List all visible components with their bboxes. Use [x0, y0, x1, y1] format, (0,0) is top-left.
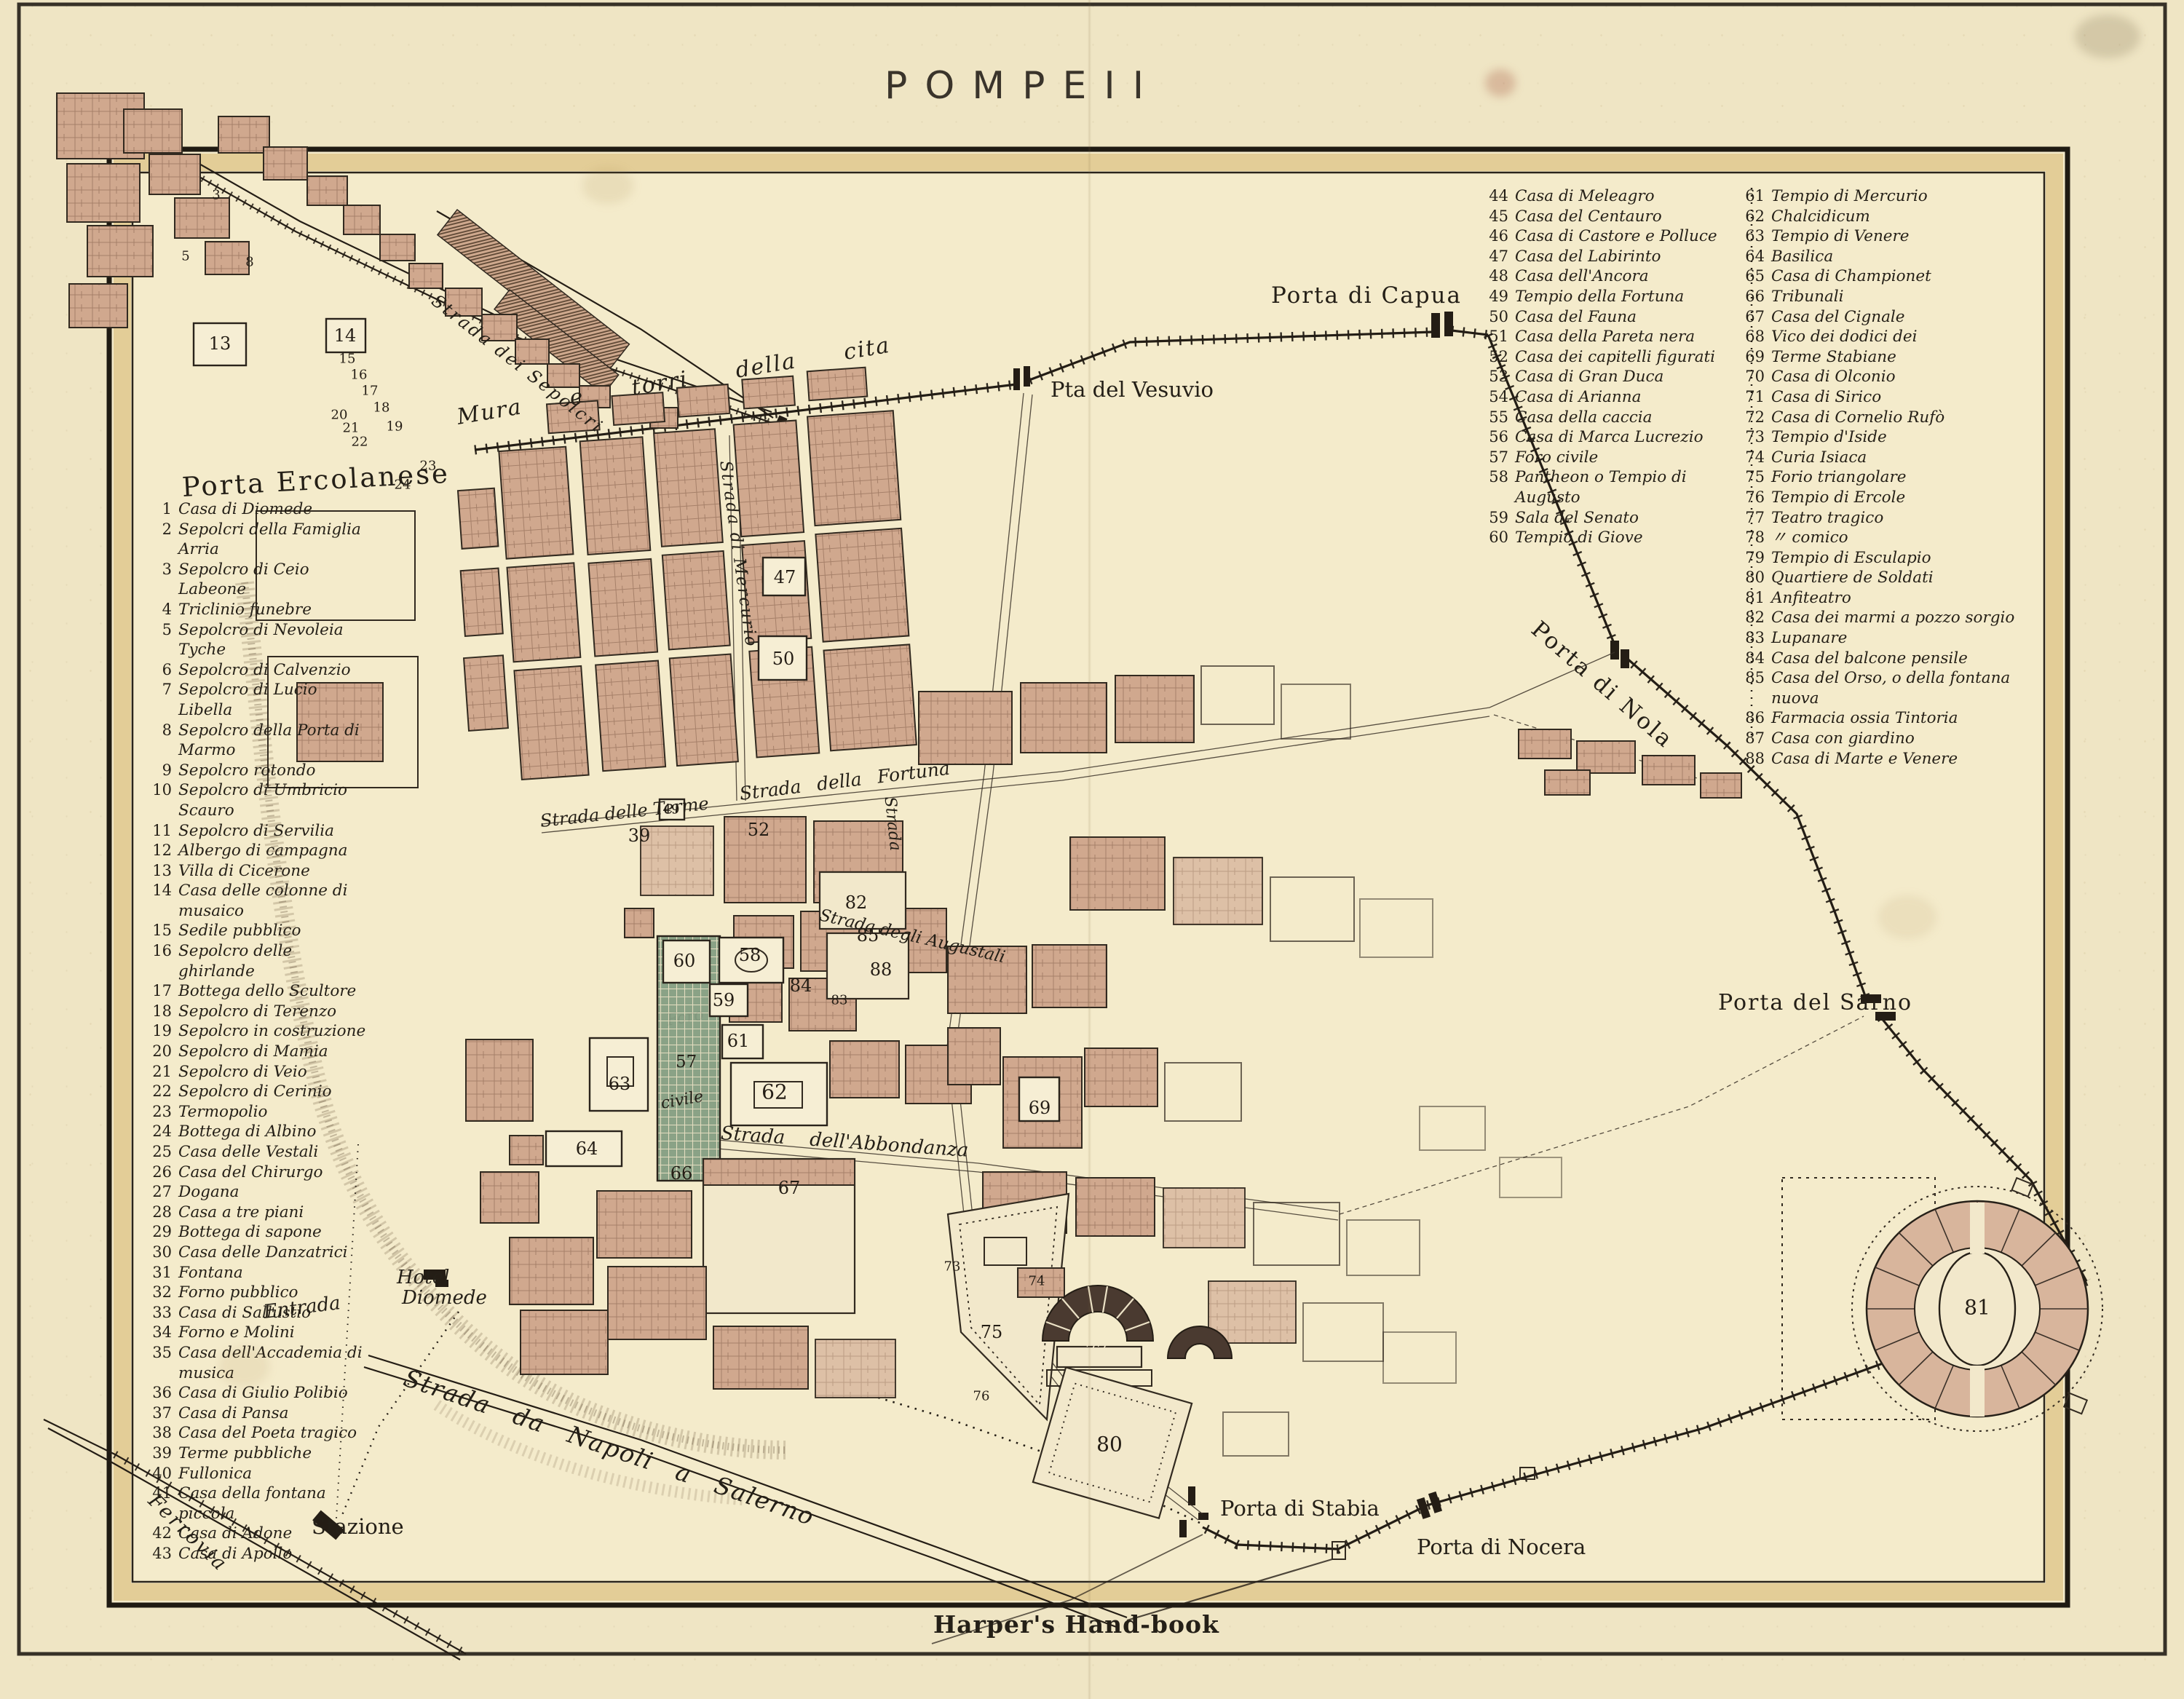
legend-item-text: Forno e Molini [178, 1323, 369, 1343]
legend-item-text: Casa di Giulio Polibio [178, 1383, 369, 1403]
legend-item: 10 Sepolcro di Umbricio Scauro [138, 780, 415, 820]
legend-item-number: 4 [138, 600, 178, 620]
map-number-83: 83 [831, 993, 848, 1008]
legend-item-number: 54 [1475, 387, 1515, 408]
label-strada-abbondanza: Strada dell'Abbondanza [720, 1122, 969, 1162]
label-foro-2: civile [660, 1088, 705, 1113]
legend-item-text: Sepolcro della Porta di Marmo [178, 721, 369, 761]
legend-item-number: 34 [138, 1323, 178, 1343]
legend-item: 87 Casa con giardino [1731, 729, 2052, 749]
legend-item-number: 41 [138, 1484, 178, 1524]
legend-item: 13 Villa di Cicerone [138, 861, 415, 882]
legend-item-text: Forno pubblico [178, 1283, 369, 1303]
legend-item: 8 Sepolcro della Porta di Marmo [138, 721, 415, 761]
legend-item: 76 Tempio di Ercole [1731, 488, 2052, 508]
legend-item: 82 Casa dei marmi a pozzo sorgio [1731, 608, 2052, 628]
legend-item-text: Tempio d'Iside [1771, 427, 2039, 448]
legend-item-number: 63 [1731, 226, 1771, 247]
credit: Harper's Hand-book [933, 1610, 1219, 1639]
legend-item-text: Sepolcro di Lucio Libella [178, 680, 369, 720]
legend-item-number: 16 [138, 941, 178, 981]
map-number-76: 76 [973, 1389, 990, 1404]
map-number-16: 16 [351, 368, 368, 383]
map-number-64: 64 [576, 1138, 598, 1159]
legend-item-text: Casa dell'Ancora [1515, 266, 1749, 287]
legend-item-text: Sepolcro di Terenzo [178, 1002, 369, 1022]
legend-item-text: Casa del Cignale [1771, 307, 2039, 328]
legend-item-text: Sepolcro di Veio [178, 1062, 369, 1082]
legend-item: 44 Casa di Meleagro [1475, 186, 1752, 207]
legend-item: 73 Tempio d'Iside [1731, 427, 2052, 448]
map-number-59: 59 [713, 990, 735, 1010]
map-number-74: 74 [1029, 1274, 1045, 1289]
legend-item-number: 79 [1731, 548, 1771, 569]
legend-item-text: Termopolio [178, 1102, 369, 1122]
legend-item-number: 12 [138, 841, 178, 861]
legend-item-text: Tempio di Giove [1515, 528, 1749, 548]
legend-item-number: 21 [138, 1062, 178, 1082]
legend-item-text: Casa del Orso, o della fontana nuova [1771, 668, 2039, 708]
legend-item: 11 Sepolcro di Servilia [138, 821, 415, 841]
paper-stain [218, 1347, 269, 1387]
legend-item: 71 Casa di Sirico [1731, 387, 2052, 408]
legend-item-text: Casa dei marmi a pozzo sorgio [1771, 608, 2039, 628]
map-number-88: 88 [870, 959, 893, 980]
label-strada-napoli-salerno: Strada da Napoli a Salerno [400, 1363, 819, 1531]
legend-item-number: 59 [1475, 508, 1515, 528]
legend-item-text: Casa di Meleagro [1515, 186, 1749, 207]
legend-item: 37 Casa di Pansa [138, 1403, 415, 1424]
legend-item: 81 Anfiteatro [1731, 588, 2052, 609]
legend-item: 25 Casa delle Vestali [138, 1142, 415, 1163]
map-number-52: 52 [748, 820, 770, 840]
legend-item: 43 Casa di Apollo [138, 1544, 415, 1564]
legend-item-text: Sepolcro di Cerinio [178, 1082, 369, 1102]
map-number-17: 17 [362, 384, 379, 399]
legend-item-text: Forio triangolare [1771, 467, 2039, 488]
label-strada-fortuna: Strada della Fortuna [738, 758, 951, 804]
legend-item: 54 Casa di Arianna [1475, 387, 1752, 408]
legend-item-number: 88 [1731, 749, 1771, 769]
legend-column-left: 1 Casa di Diomede 2 Sepolcri della Famig… [138, 499, 415, 1564]
legend-item: 29 Bottega di sapone [138, 1222, 415, 1243]
legend-item: 4 Triclinio funebre [138, 600, 415, 620]
label-strada-augustali: Strada degli Augustali [818, 906, 1007, 967]
legend-item-text: Casa delle Vestali [178, 1142, 369, 1163]
legend-item-text: Fontana [178, 1263, 369, 1283]
map-number-8: 8 [245, 255, 253, 270]
legend-item-number: 38 [138, 1423, 178, 1443]
map-title: POMPEII [885, 64, 1161, 108]
legend-item-number: 83 [1731, 628, 1771, 649]
legend-item-number: 27 [138, 1182, 178, 1203]
map-number-62: 62 [761, 1080, 788, 1104]
legend-item-text: Basilica [1771, 247, 2039, 267]
legend-item-number: 36 [138, 1383, 178, 1403]
legend-item: 56 Casa di Marca Lucrezio [1475, 427, 1752, 448]
map-number-21: 21 [343, 421, 360, 436]
legend-item-text: Casa di Pansa [178, 1403, 369, 1424]
legend-item-number: 85 [1731, 668, 1771, 708]
legend-item: 32 Forno pubblico [138, 1283, 415, 1303]
legend-item-text: Casa del Chirurgo [178, 1163, 369, 1183]
legend-item: 23 Termopolio [138, 1102, 415, 1122]
legend-item-number: 25 [138, 1142, 178, 1163]
legend-item-text: Casa di Sirico [1771, 387, 2039, 408]
legend-item: 46 Casa di Castore e Polluce [1475, 226, 1752, 247]
map-number-3: 3 [212, 188, 220, 203]
legend-item-text: Curia Isiaca [1771, 448, 2039, 468]
legend-item-text: Pantheon o Tempio di Augusto [1515, 467, 1749, 507]
legend-item-text: Casa di Arianna [1515, 387, 1749, 408]
label-porta-nola: Porta di Nola [1526, 616, 1679, 753]
legend-item: 77 Teatro tragico [1731, 508, 2052, 528]
legend-item-number: 15 [138, 921, 178, 941]
legend-item-text: Lupanare [1771, 628, 2039, 649]
legend-item-text: Casa di Apollo [178, 1544, 369, 1564]
map-number-50: 50 [772, 649, 795, 669]
legend-item-number: 26 [138, 1163, 178, 1183]
legend-item-number: 61 [1731, 186, 1771, 207]
legend-item-number: 56 [1475, 427, 1515, 448]
legend-item-text: Sepolcro di Mamia [178, 1042, 369, 1062]
legend-item-text: Tempio di Ercole [1771, 488, 2039, 508]
legend-item-number: 69 [1731, 347, 1771, 368]
legend-item: 61 Tempio di Mercurio [1731, 186, 2052, 207]
legend-item-text: Casa di Sallustio [178, 1303, 369, 1323]
legend-item-number: 75 [1731, 467, 1771, 488]
legend-item-number: 86 [1731, 708, 1771, 729]
legend-item-number: 14 [138, 881, 178, 921]
legend-item-text: Casa di Gran Duca [1515, 367, 1749, 387]
legend-item: 6 Sepolcro di Calvenzio [138, 660, 415, 681]
legend-item-text: Casa dei capitelli figurati [1515, 347, 1749, 368]
legend-item-number: 2 [138, 520, 178, 560]
legend-item: 28 Casa a tre piani [138, 1203, 415, 1223]
legend-item-text: Casa con giardino [1771, 729, 2039, 749]
legend-item: 80 Quartiere de Soldati [1731, 568, 2052, 588]
paper-stain [1485, 69, 1516, 97]
label-strada-vertical: Strada [881, 796, 905, 852]
legend-item-text: Triclinio funebre [178, 600, 369, 620]
legend-item: 5 Sepolcro di Nevoleia Tyche [138, 620, 415, 660]
legend-item: 83 Lupanare [1731, 628, 2052, 649]
legend-item-text: Villa di Cicerone [178, 861, 369, 882]
legend-item-number: 68 [1731, 327, 1771, 347]
legend-item-number: 42 [138, 1524, 178, 1544]
legend-item-number: 13 [138, 861, 178, 882]
legend-item: 88 Casa di Marte e Venere [1731, 749, 2052, 769]
legend-item: 58 Pantheon o Tempio di Augusto [1475, 467, 1752, 507]
legend-item: 50 Casa del Fauna [1475, 307, 1752, 328]
legend-item-text: Casa di Marca Lucrezio [1515, 427, 1749, 448]
legend-item: 17 Bottega dello Scultore [138, 981, 415, 1002]
legend-item: 51 Casa della Pareta nera [1475, 327, 1752, 347]
legend-item-text: Sepolcro di Servilia [178, 821, 369, 841]
legend-item-text: Tempio di Esculapio [1771, 548, 2039, 569]
legend-item-text: Casa del balcone pensile [1771, 649, 2039, 669]
label-porta-vesuvio: Pta del Vesuvio [1051, 377, 1214, 402]
legend-item: 57 Foro civile [1475, 448, 1752, 468]
legend-item-number: 10 [138, 780, 178, 820]
map-number-67: 67 [778, 1178, 801, 1198]
legend-item-number: 55 [1475, 408, 1515, 428]
legend-item-number: 3 [138, 560, 178, 600]
legend-item-number: 35 [138, 1343, 178, 1383]
legend-item-text: Sepolcro rotondo [178, 761, 369, 781]
legend-item-number: 9 [138, 761, 178, 781]
legend-item-number: 51 [1475, 327, 1515, 347]
legend-item-text: Sepolcro di Calvenzio [178, 660, 369, 681]
text-layer: POMPEII Porta Ercolanese Pta del Vesuvio… [0, 0, 2184, 1699]
legend-item-number: 66 [1731, 287, 1771, 307]
map-number-66: 66 [670, 1163, 693, 1184]
map-number-81: 81 [1964, 1296, 1990, 1320]
legend-item: 1 Casa di Diomede [138, 499, 415, 520]
legend-item-text: Bottega dello Scultore [178, 981, 369, 1002]
legend-item-number: 64 [1731, 247, 1771, 267]
legend-item-number: 52 [1475, 347, 1515, 368]
legend-item-number: 6 [138, 660, 178, 681]
map-number-58: 58 [739, 945, 761, 965]
legend-item: 68 Vico dei dodici dei [1731, 327, 2052, 347]
label-porta-nocera: Porta di Nocera [1417, 1534, 1586, 1559]
legend-item-number: 73 [1731, 427, 1771, 448]
legend-item-text: Bottega di sapone [178, 1222, 369, 1243]
legend-item: 72 Casa di Cornelio Rufò [1731, 408, 2052, 428]
legend-item: 75 Forio triangolare [1731, 467, 2052, 488]
legend-item: 35 Casa dell'Accademia di musica [138, 1343, 415, 1383]
legend-item: 67 Casa del Cignale [1731, 307, 2052, 328]
legend-item-number: 77 [1731, 508, 1771, 528]
label-porta-capua: Porta di Capua [1271, 282, 1462, 309]
legend-item: 49 Tempio della Fortuna [1475, 287, 1752, 307]
legend-item: 69 Terme Stabiane [1731, 347, 2052, 368]
legend-item-text: Foro civile [1515, 448, 1749, 468]
legend-item-number: 80 [1731, 568, 1771, 588]
legend-item-number: 82 [1731, 608, 1771, 628]
legend-item-number: 47 [1475, 247, 1515, 267]
legend-item: 78 〃 comico [1731, 528, 2052, 548]
legend-item-text: Casa a tre piani [178, 1203, 369, 1223]
legend-item: 30 Casa delle Danzatrici [138, 1243, 415, 1263]
legend-item-number: 72 [1731, 408, 1771, 428]
fold-crease [1088, 0, 1091, 1699]
legend-item: 20 Sepolcro di Mamia [138, 1042, 415, 1062]
legend-item: 40 Fullonica [138, 1464, 415, 1484]
legend-item-text: Tempio di Venere [1771, 226, 2039, 247]
map-number-47: 47 [774, 567, 796, 587]
legend-item: 85 Casa del Orso, o della fontana nuova [1731, 668, 2052, 708]
legend-item-number: 39 [138, 1443, 178, 1464]
legend-item: 3 Sepolcro di Ceio Labeone [138, 560, 415, 600]
legend-item: 86 Farmacia ossia Tintoria [1731, 708, 2052, 729]
paper-stain [582, 167, 633, 204]
legend-item: 66 Tribunali [1731, 287, 2052, 307]
map-number-80: 80 [1096, 1433, 1123, 1457]
legend-item-number: 1 [138, 499, 178, 520]
legend-item-number: 29 [138, 1222, 178, 1243]
map-number-14: 14 [334, 325, 357, 346]
legend-item-text: Fullonica [178, 1464, 369, 1484]
legend-item-number: 22 [138, 1082, 178, 1102]
legend-item: 24 Bottega di Albino [138, 1122, 415, 1142]
legend-item-text: Anfiteatro [1771, 588, 2039, 609]
legend-item-text: Casa del Poeta tragico [178, 1423, 369, 1443]
legend-item-text: Sala del Senato [1515, 508, 1749, 528]
map-number-63: 63 [609, 1074, 631, 1094]
legend-item-number: 71 [1731, 387, 1771, 408]
legend-item: 60 Tempio di Giove [1475, 528, 1752, 548]
legend-item-number: 23 [138, 1102, 178, 1122]
legend-item-text: Sedile pubblico [178, 921, 369, 941]
map-number-84: 84 [790, 975, 812, 996]
legend-item: 84 Casa del balcone pensile [1731, 649, 2052, 669]
legend-item-number: 78 [1731, 528, 1771, 548]
legend-item: 16 Sepolcro delle ghirlande [138, 941, 415, 981]
legend-item: 9 Sepolcro rotondo [138, 761, 415, 781]
label-porta-sarno: Porta del Sarno [1718, 990, 1912, 1015]
legend-item: 41 Casa della fontana piccola [138, 1484, 415, 1524]
paper-stain [2075, 15, 2140, 58]
legend-item-text: Casa di Adone [178, 1524, 369, 1544]
legend-item-text: Casa di Diomede [178, 499, 369, 520]
legend-item-number: 30 [138, 1243, 178, 1263]
legend-item-text: Casa di Cornelio Rufò [1771, 408, 2039, 428]
legend-item: 55 Casa della caccia [1475, 408, 1752, 428]
legend-item-number: 28 [138, 1203, 178, 1223]
legend-item-number: 46 [1475, 226, 1515, 247]
legend-item-number: 70 [1731, 367, 1771, 387]
legend-item-number: 20 [138, 1042, 178, 1062]
legend-item-number: 49 [1475, 287, 1515, 307]
legend-item-text: 〃 comico [1771, 528, 2039, 548]
legend-item-text: Casa del Centauro [1515, 207, 1749, 227]
legend-item-number: 5 [138, 620, 178, 660]
legend-item-text: Sepolcri della Famiglia Arria [178, 520, 369, 560]
legend-item-text: Casa di Championet [1771, 266, 2039, 287]
legend-column-right: 61 Tempio di Mercurio 62 Chalcidicum 63 … [1731, 186, 2052, 769]
legend-item-text: Farmacia ossia Tintoria [1771, 708, 2039, 729]
label-foro-57: 57 [676, 1053, 697, 1072]
legend-item-number: 81 [1731, 588, 1771, 609]
legend-item: 7 Sepolcro di Lucio Libella [138, 680, 415, 720]
map-number-60: 60 [673, 951, 696, 971]
label-porta-stabia: Porta di Stabia [1220, 1496, 1380, 1521]
legend-item-number: 33 [138, 1303, 178, 1323]
legend-item-number: 74 [1731, 448, 1771, 468]
map-number-61: 61 [727, 1031, 750, 1051]
legend-item-number: 57 [1475, 448, 1515, 468]
legend-item-text: Casa di Marte e Venere [1771, 749, 2039, 769]
map-number-39: 39 [628, 825, 651, 846]
legend-item: 52 Casa dei capitelli figurati [1475, 347, 1752, 368]
map-number-85: 85 [857, 925, 879, 946]
legend-item-number: 65 [1731, 266, 1771, 287]
legend-item-text: Tribunali [1771, 287, 2039, 307]
legend-item-text: Casa della Pareta nera [1515, 327, 1749, 347]
legend-item: 27 Dogana [138, 1182, 415, 1203]
map-number-73: 73 [944, 1259, 961, 1275]
map-number-13: 13 [209, 333, 232, 354]
legend-item: 39 Terme pubbliche [138, 1443, 415, 1464]
map-number-5: 5 [181, 249, 189, 264]
legend-item: 79 Tempio di Esculapio [1731, 548, 2052, 569]
page: { "title": "POMPEII", "credit": "Harper'… [0, 0, 2184, 1699]
legend-item-number: 43 [138, 1544, 178, 1564]
legend-item-text: Casa del Labirinto [1515, 247, 1749, 267]
legend-item-number: 48 [1475, 266, 1515, 287]
map-number-24: 24 [395, 478, 411, 493]
legend-item-number: 7 [138, 680, 178, 720]
legend-item: 47 Casa del Labirinto [1475, 247, 1752, 267]
legend-item: 62 Chalcidicum [1731, 207, 2052, 227]
legend-item-text: Sepolcro in costruzione [178, 1021, 369, 1042]
legend-item-number: 45 [1475, 207, 1515, 227]
paper-stain [1878, 895, 1936, 939]
legend-item-text: Casa di Castore e Polluce [1515, 226, 1749, 247]
legend-item-text: Albergo di campagna [178, 841, 369, 861]
legend-item-text: Casa del Fauna [1515, 307, 1749, 328]
legend-item-text: Tempio di Mercurio [1771, 186, 2039, 207]
legend-item-text: Casa delle colonne di musaico [178, 881, 369, 921]
label-strada-mercurio: Strada di Mercurio [716, 459, 761, 649]
legend-item-text: Casa delle Danzatrici [178, 1243, 369, 1263]
legend-item: 21 Sepolcro di Veio [138, 1062, 415, 1082]
legend-item-text: Terme pubbliche [178, 1443, 369, 1464]
legend-item: 42 Casa di Adone [138, 1524, 415, 1544]
legend-item: 65 Casa di Championet [1731, 266, 2052, 287]
legend-item: 59 Sala del Senato [1475, 508, 1752, 528]
map-number-23: 23 [420, 459, 437, 474]
legend-item: 48 Casa dell'Ancora [1475, 266, 1752, 287]
map-number-82: 82 [845, 892, 868, 913]
map-number-15: 15 [339, 352, 356, 367]
legend-item: 74 Curia Isiaca [1731, 448, 2052, 468]
map-number-69: 69 [1029, 1098, 1051, 1118]
legend-item-text: Casa della fontana piccola [178, 1484, 369, 1524]
legend-item-text: Casa dell'Accademia di musica [178, 1343, 369, 1383]
legend-item-number: 76 [1731, 488, 1771, 508]
label-foro-1: Foro [665, 1005, 705, 1029]
legend-item-number: 60 [1475, 528, 1515, 548]
legend-item: 22 Sepolcro di Cerinio [138, 1082, 415, 1102]
legend-item-number: 19 [138, 1021, 178, 1042]
legend-item-number: 87 [1731, 729, 1771, 749]
legend-item-text: Dogana [178, 1182, 369, 1203]
legend-item: 63 Tempio di Venere [1731, 226, 2052, 247]
legend-item: 18 Sepolcro di Terenzo [138, 1002, 415, 1022]
legend-item: 14 Casa delle colonne di musaico [138, 881, 415, 921]
legend-item-text: Sepolcro di Ceio Labeone [178, 560, 369, 600]
legend-item-number: 44 [1475, 186, 1515, 207]
legend-item-text: Sepolcro delle ghirlande [178, 941, 369, 981]
legend-item-number: 62 [1731, 207, 1771, 227]
legend-item-number: 8 [138, 721, 178, 761]
legend-item: 34 Forno e Molini [138, 1323, 415, 1343]
legend-item-number: 18 [138, 1002, 178, 1022]
legend-column-middle: 44 Casa di Meleagro 45 Casa del Centauro… [1475, 186, 1752, 548]
legend-item: 15 Sedile pubblico [138, 921, 415, 941]
legend-item-text: Teatro tragico [1771, 508, 2039, 528]
map-number-75: 75 [981, 1322, 1003, 1342]
legend-item-number: 24 [138, 1122, 178, 1142]
label-mura: Mura e torri della cita [455, 333, 892, 430]
legend-item-text: Bottega di Albino [178, 1122, 369, 1142]
legend-item: 70 Casa di Olconio [1731, 367, 2052, 387]
legend-item: 36 Casa di Giulio Polibio [138, 1383, 415, 1403]
map-number-49: 49 [663, 802, 680, 817]
